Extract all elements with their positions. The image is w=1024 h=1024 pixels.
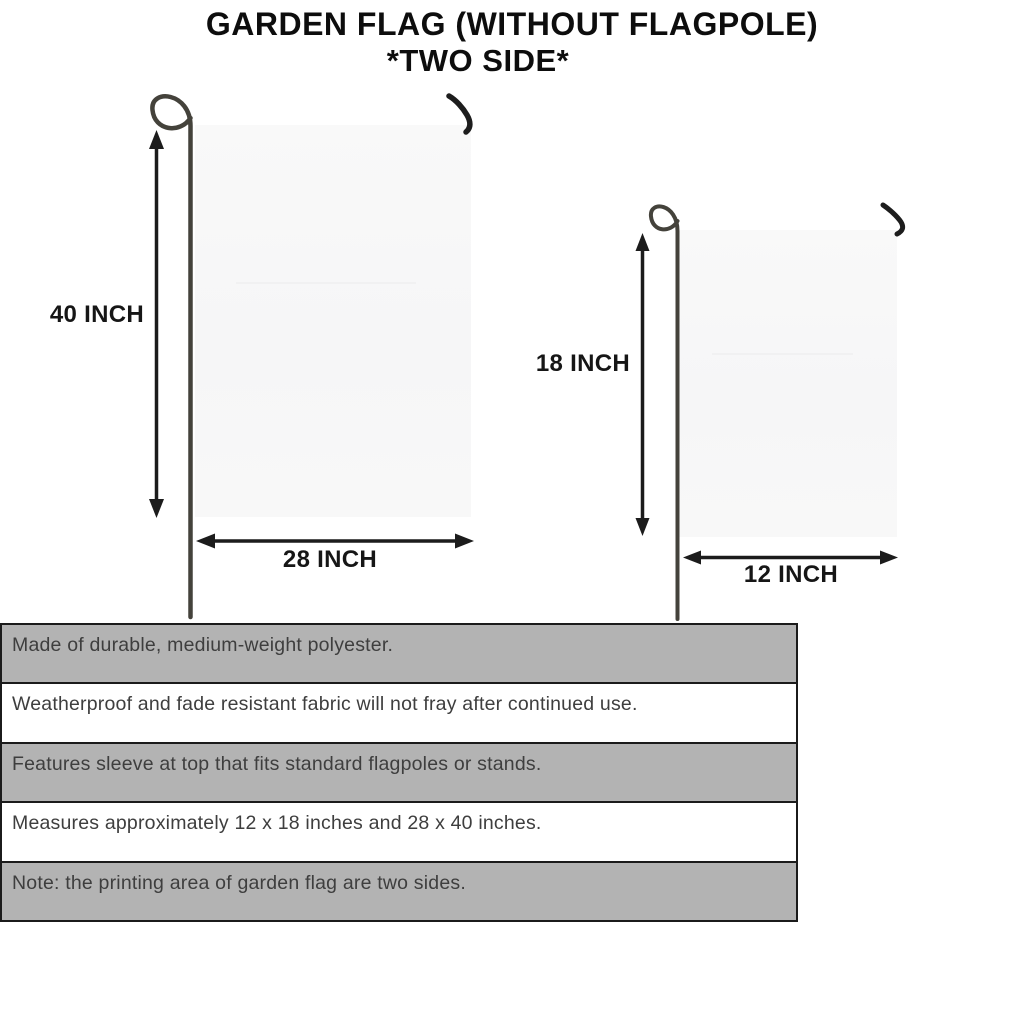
small-flag-height-label: 18 INCH xyxy=(514,350,630,378)
title-line-2: *TWO SIDE* xyxy=(0,43,1024,79)
feature-row-sleeve: Features sleeve at top that fits standar… xyxy=(2,742,796,801)
small-flag-panel xyxy=(679,230,897,537)
feature-row-material: Made of durable, medium-weight polyester… xyxy=(2,625,796,682)
feature-row-weatherproof: Weatherproof and fade resistant fabric w… xyxy=(2,682,796,741)
title-line-1: GARDEN FLAG (WITHOUT FLAGPOLE) xyxy=(0,5,1024,43)
garden-flag-infographic: GARDEN FLAG (WITHOUT FLAGPOLE) *TWO SIDE… xyxy=(0,0,1024,1024)
feature-row-note: Note: the printing area of garden flag a… xyxy=(2,861,796,920)
small-flag-width-label: 12 INCH xyxy=(691,561,891,589)
features-table: Made of durable, medium-weight polyester… xyxy=(0,623,798,922)
feature-row-measurements: Measures approximately 12 x 18 inches an… xyxy=(2,801,796,860)
large-height-arrow-icon xyxy=(149,130,164,518)
large-flagpole-icon xyxy=(152,96,190,617)
large-flag-height-label: 40 INCH xyxy=(28,301,144,329)
large-flag-width-label: 28 INCH xyxy=(230,546,430,574)
small-height-arrow-icon xyxy=(636,233,650,536)
small-flagpole-icon xyxy=(651,206,678,619)
page-title: GARDEN FLAG (WITHOUT FLAGPOLE) *TWO SIDE… xyxy=(0,5,1024,79)
large-flag-panel xyxy=(195,125,471,517)
